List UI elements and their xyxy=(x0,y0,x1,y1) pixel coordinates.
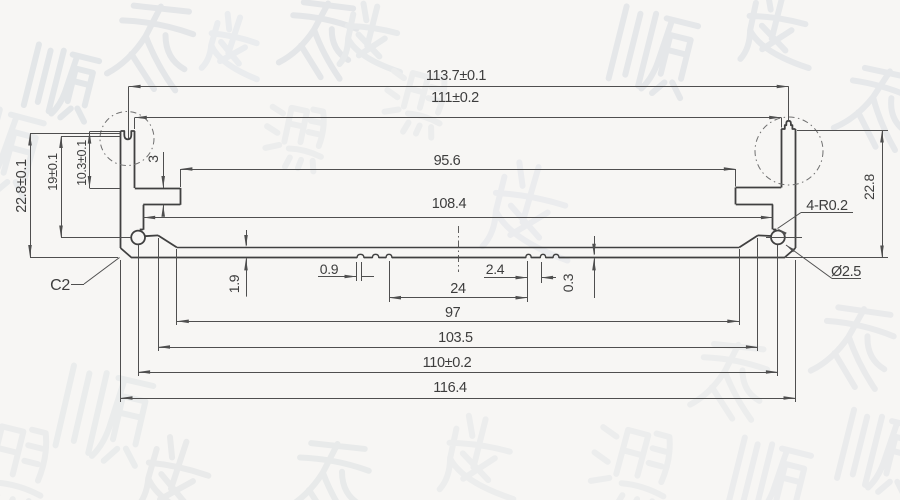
svg-text:110±0.2: 110±0.2 xyxy=(423,355,472,371)
svg-text:4-R0.2: 4-R0.2 xyxy=(806,198,848,214)
svg-text:22.8±0.1: 22.8±0.1 xyxy=(14,159,30,213)
svg-text:3: 3 xyxy=(145,155,161,163)
svg-text:19±0.1: 19±0.1 xyxy=(45,153,60,191)
svg-text:10.3±0.1: 10.3±0.1 xyxy=(75,140,89,186)
svg-text:95.6: 95.6 xyxy=(434,153,461,169)
svg-text:Ø2.5: Ø2.5 xyxy=(831,264,861,280)
svg-text:24: 24 xyxy=(450,281,466,297)
svg-text:22.8: 22.8 xyxy=(861,174,877,200)
svg-text:0.9: 0.9 xyxy=(320,261,339,277)
svg-text:C2: C2 xyxy=(50,277,70,294)
svg-text:97: 97 xyxy=(445,305,461,321)
svg-text:113.7±0.1: 113.7±0.1 xyxy=(426,68,486,84)
svg-text:108.4: 108.4 xyxy=(432,196,467,212)
svg-text:116.4: 116.4 xyxy=(433,380,467,396)
svg-text:2.4: 2.4 xyxy=(486,261,505,277)
svg-text:111±0.2: 111±0.2 xyxy=(431,90,479,106)
svg-text:1.9: 1.9 xyxy=(226,274,242,293)
svg-text:0.3: 0.3 xyxy=(560,273,576,292)
svg-text:103.5: 103.5 xyxy=(438,330,473,346)
